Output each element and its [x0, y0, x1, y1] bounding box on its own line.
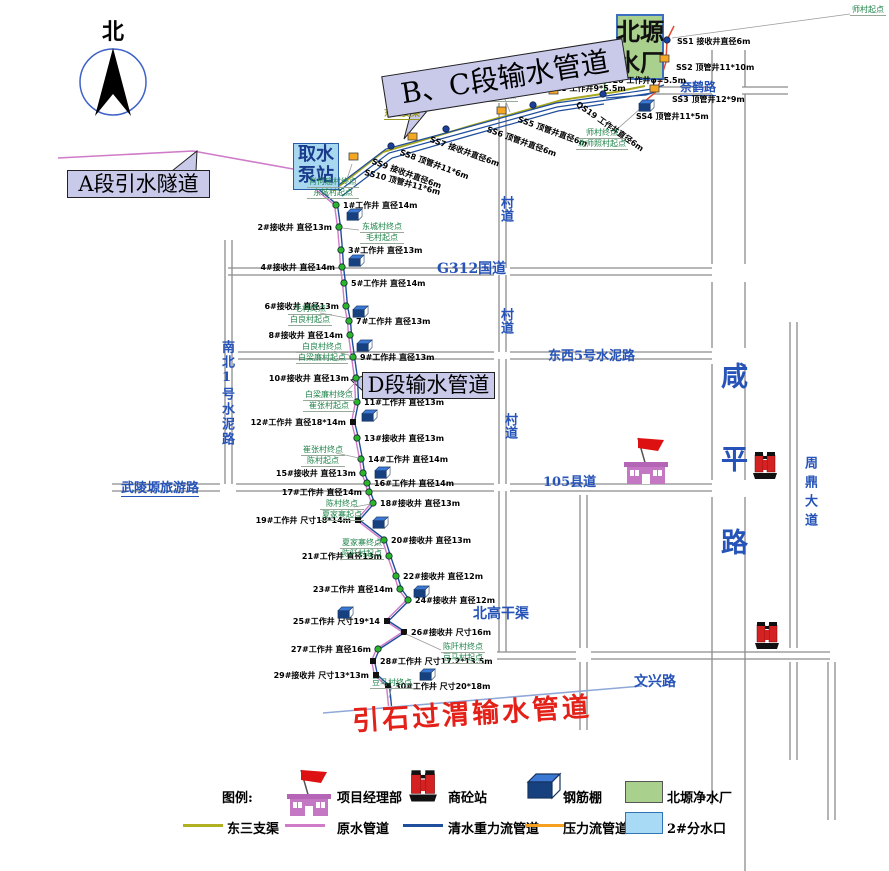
rebar-shed-icon: [348, 252, 365, 271]
road-label: 东西5号水泥路: [548, 345, 635, 364]
d-section-label: D段输水管道: [362, 372, 495, 399]
callout-leader-line: [672, 14, 850, 38]
well-label: 22#接收井 直径12m: [403, 571, 483, 582]
road-label: 村道: [500, 413, 519, 439]
legend-item-label: 北塬净水厂: [667, 787, 732, 806]
village-callout: 白良村终点白梁廉村起点: [296, 342, 348, 364]
map-lines-canvas: [0, 0, 889, 871]
village-callout: 崔张村终点陈村起点: [301, 445, 345, 467]
village-callout-line: 北师照村起点: [576, 139, 628, 150]
road-label: 北高干渠: [473, 603, 529, 623]
well-label: 2#接收井 直径13m: [257, 222, 332, 233]
legend-item-label: 项目经理部: [337, 787, 402, 806]
road-label: 南北1号水泥路: [217, 340, 236, 447]
hq-icon: [624, 436, 668, 490]
batch-plant-icon: [752, 450, 778, 484]
well-label: 13#接收井 直径13m: [364, 433, 444, 444]
well-label: 23#工作井 直径14m: [313, 584, 393, 595]
village-callout-line: 毛村终点: [288, 304, 332, 315]
road-label: 周鼎大道: [800, 456, 819, 532]
pipeline-map: 北 B、C段输水管道 A段引水隧道 D段输水管道 取水 泵站 北塬 净水厂 引石…: [0, 0, 889, 871]
green-rect: [625, 781, 663, 803]
village-callout-line: 豆马村起点: [441, 653, 485, 664]
line-orange: [525, 824, 565, 827]
road-label: 咸平路: [712, 362, 751, 611]
village-callout-line: 白梁廉村终点: [303, 390, 355, 401]
legend-item-label: 原水管道: [337, 818, 389, 837]
hq-icon: [287, 768, 331, 822]
rebar-shed-icon: [372, 514, 389, 533]
village-callout-line: 陈阡村起点: [340, 549, 384, 560]
road-label: G312国道: [437, 258, 506, 278]
village-callout-line: 崔张村起点: [303, 401, 355, 412]
village-callout-line: 夏家寨终点: [340, 538, 384, 549]
callout-leader-line: [342, 228, 359, 230]
ss-well-label: SS1 接收井直径6m: [677, 36, 750, 47]
rebar-shed-icon: [419, 666, 436, 685]
rebar-shed-icon: [352, 303, 369, 322]
village-callout: 毛村终点白良村起点: [288, 304, 332, 326]
village-callout: 师村终点北师照村起点: [576, 128, 628, 150]
legend-item-label: 钢筋棚: [563, 787, 602, 806]
cyan-rect: [625, 812, 663, 834]
rebar-shed-icon: [374, 464, 391, 483]
village-callout-line: 陈村终点: [320, 499, 364, 510]
legend-item-label: 清水重力流管道: [448, 818, 539, 837]
village-callout-line: 毛村起点: [360, 233, 404, 244]
well-label: 29#接收井 尺寸13*13m: [274, 670, 369, 681]
north-label: 北: [102, 14, 124, 46]
village-callout: 师村起点: [850, 5, 886, 16]
well-label: 12#工作井 直径18*14m: [251, 417, 346, 428]
a-section-label: A段引水隧道: [67, 170, 210, 198]
village-callout: 陈阡村终点豆马村起点: [441, 642, 485, 664]
rebar-shed-icon: [346, 206, 363, 225]
ss-well-label: SS2 顶管井11*10m: [676, 62, 754, 73]
village-callout-line: 师村起点: [850, 5, 886, 16]
line-blue: [403, 824, 443, 827]
well-label: 15#接收井 直径13m: [276, 468, 356, 479]
village-callout-line: 师村终点: [576, 128, 628, 139]
village-callout: 陈村终点夏家寨起点: [320, 499, 364, 521]
raw-water-pipeline: [58, 151, 293, 169]
legend-item-label: 商砼站: [448, 787, 487, 806]
village-callout-line: 白良村起点: [288, 315, 332, 326]
line-pink: [285, 824, 325, 827]
village-callout-line: 白梁廉村起点: [296, 353, 348, 364]
village-callout: 白梁廉村终点崔张村起点: [303, 390, 355, 412]
village-callout-line: 东城村终点: [360, 222, 404, 233]
village-callout: 豆马村终点: [370, 678, 414, 689]
village-callout: 东城村终点毛村起点: [360, 222, 404, 244]
legend-item-label: 东三支渠: [227, 818, 279, 837]
road-label: 村道: [496, 308, 515, 334]
village-callout-line: 东城村起点: [307, 188, 359, 199]
ss-well-label: SS3 顶管井12*9m: [672, 94, 745, 105]
legend-item-label: 压力流管道: [563, 818, 628, 837]
batch-plant-icon: [754, 620, 780, 654]
village-callout-line: 白良村终点: [296, 342, 348, 353]
line-olive: [183, 824, 223, 827]
well-label: 20#接收井 直径13m: [391, 535, 471, 546]
village-callout: 夏家寨终点陈阡村起点: [340, 538, 384, 560]
road-label: 文兴路: [634, 671, 676, 691]
legend-caption: 图例:: [222, 787, 253, 806]
well-label: 10#接收井 直径13m: [269, 373, 349, 384]
rebar-shed-icon: [526, 772, 562, 804]
rebar-shed-icon: [413, 583, 430, 602]
well-label: 26#接收井 尺寸16m: [411, 627, 491, 638]
intake-label-line1: 取水: [294, 144, 338, 165]
batch-plant-icon: [408, 768, 438, 807]
well-label: 4#接收井 直径14m: [260, 262, 335, 273]
road-label: 武陵塬旅游路: [121, 477, 199, 497]
well-label: 17#工作井 直径14m: [282, 487, 362, 498]
village-callout-line: 陈村起点: [301, 456, 345, 467]
road-label: 105县道: [543, 471, 596, 490]
village-callout-line: 肖何庙村终点: [307, 177, 359, 188]
village-callout-line: 豆马村终点: [370, 678, 414, 689]
village-callout-line: 陈阡村终点: [441, 642, 485, 653]
road-label: 村道: [496, 196, 515, 222]
village-callout-line: 崔张村终点: [301, 445, 345, 456]
rebar-shed-icon: [638, 97, 655, 116]
well-label: 18#接收井 直径13m: [380, 498, 460, 509]
legend-item-label: 2#分水口: [667, 818, 726, 837]
village-callout-line: 夏家寨起点: [320, 510, 364, 521]
well-label: 5#工作井 直径14m: [351, 278, 426, 289]
rebar-shed-icon: [337, 604, 354, 623]
rebar-shed-icon: [361, 407, 378, 426]
well-label: 8#接收井 直径14m: [268, 330, 343, 341]
a-label-tail: [172, 151, 197, 171]
rebar-shed-icon: [356, 337, 373, 356]
well-label: 27#工作井 直径16m: [291, 644, 371, 655]
village-callout: 肖何庙村终点东城村起点: [307, 177, 359, 199]
compass-north-arrow-icon: [95, 48, 131, 116]
